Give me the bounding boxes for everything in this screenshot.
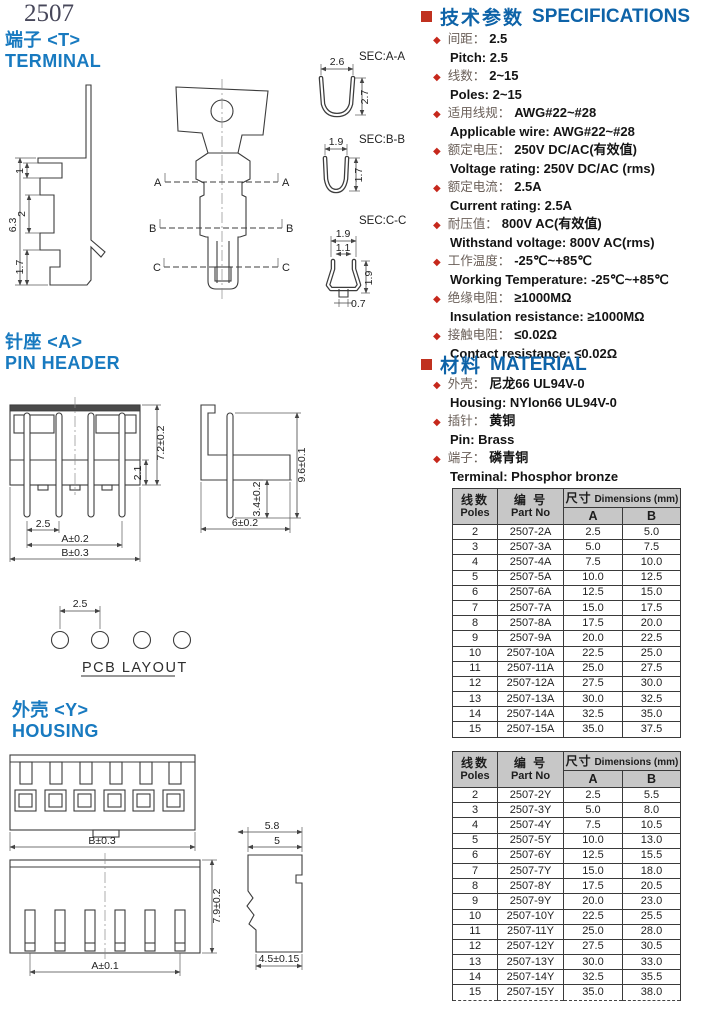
spec-item: ◆适用线规：AWG#22~#28Applicable wire: AWG#22~…	[433, 105, 713, 140]
table-cell: 30.0	[623, 676, 681, 691]
table-cell: 5.0	[623, 525, 681, 540]
spec-label-cn: 端子：	[448, 451, 486, 465]
table-cell: 12	[453, 676, 498, 691]
table-cell: 2507-4Y	[498, 818, 564, 833]
table-cell: 20.5	[623, 879, 681, 894]
pin-header-section-title: 针座 <A> PIN HEADER	[5, 332, 120, 374]
column-header-b: B	[623, 771, 681, 788]
housing-front-view-bottom: A±0.1 7.9±0.2	[10, 853, 223, 976]
table-cell: 13	[453, 692, 498, 707]
table-row: 22507-2Y2.55.5	[453, 788, 681, 803]
dim-label: 6±0.2	[232, 517, 258, 529]
table-cell: 20.0	[564, 631, 623, 646]
spec-line-cn: ◆接触电阻：≤0.02Ω	[433, 327, 713, 346]
spec-line-cn: ◆插针：黄铜	[433, 413, 713, 432]
spec-line-cn: ◆额定电流：2.5A	[433, 179, 713, 198]
table-cell: 10.0	[564, 570, 623, 585]
housing-title-cn: 外壳 <Y>	[12, 700, 99, 721]
spec-line-cn: ◆工作温度：-25℃~+85℃	[433, 253, 713, 272]
table-row: 72507-7A15.017.5	[453, 600, 681, 615]
table-cell: 15.0	[564, 600, 623, 615]
table-row: 142507-14A32.535.0	[453, 707, 681, 722]
section-marker-b: B	[149, 223, 156, 235]
table-cell: 2507-12Y	[498, 939, 564, 954]
table-cell: 5.0	[564, 540, 623, 555]
dim-label: 1.1	[336, 242, 351, 254]
table-cell: 2507-6A	[498, 585, 564, 600]
spec-line-en: Insulation resistance: ≥1000MΩ	[450, 309, 713, 326]
table-row: 122507-12Y27.530.5	[453, 939, 681, 954]
table-cell: 25.0	[564, 661, 623, 676]
table-cell: 9	[453, 894, 498, 909]
table-row: 32507-3A5.07.5	[453, 540, 681, 555]
spec-label-cn: 适用线规：	[448, 106, 511, 120]
spec-value: 2~15	[489, 68, 518, 83]
dim-label: 2.7	[359, 90, 371, 105]
table-cell: 32.5	[623, 692, 681, 707]
table-cell: 25.0	[623, 646, 681, 661]
dim-label: 1	[14, 168, 26, 174]
table-row: 72507-7Y15.018.0	[453, 863, 681, 878]
table-cell: 32.5	[564, 707, 623, 722]
spec-line-en: Working Temperature: -25℃~+85℃	[450, 272, 713, 289]
dim-label: A±0.1	[91, 960, 119, 972]
table-row: 142507-14Y32.535.5	[453, 970, 681, 985]
spec-item: ◆绝缘电阻：≥1000MΩInsulation resistance: ≥100…	[433, 290, 713, 325]
table-cell: 12.5	[623, 570, 681, 585]
table-cell: 2507-9A	[498, 631, 564, 646]
dim-label: 2.6	[330, 56, 345, 68]
spec-item: ◆间距：2.5Pitch: 2.5	[433, 31, 713, 66]
spec-item: ◆外壳：尼龙66 UL94V-0Housing: NYlon66 UL94V-0	[433, 376, 713, 411]
table-cell: 10.5	[623, 818, 681, 833]
spec-line-en: Withstand voltage: 800V AC(rms)	[450, 235, 713, 252]
table-cell: 10.0	[623, 555, 681, 570]
table-row: 152507-15A35.037.5	[453, 722, 681, 737]
dim-label: A±0.2	[61, 533, 89, 545]
table-cell: 7.5	[564, 818, 623, 833]
table-cell: 2507-13Y	[498, 955, 564, 970]
table-cell: 10	[453, 909, 498, 924]
dim-label: 6.3	[7, 218, 19, 233]
spec-label-cn: 插针：	[448, 414, 486, 428]
dim-label: 5	[274, 835, 280, 847]
dim-label: 7.9±0.2	[211, 888, 223, 923]
pcb-layout-label: PCB LAYOUT	[82, 660, 188, 676]
column-header-a: A	[564, 508, 623, 525]
table-cell: 5	[453, 570, 498, 585]
spec-line-cn: ◆间距：2.5	[433, 31, 713, 50]
table-row: 152507-15Y35.038.0	[453, 985, 681, 1000]
spec-value: ≥1000MΩ	[514, 290, 571, 305]
dim-label: 1.9	[329, 136, 344, 148]
diamond-bullet-icon: ◆	[433, 35, 441, 46]
spec-label-cn: 线数：	[448, 69, 486, 83]
table-row: 82507-8Y17.520.5	[453, 879, 681, 894]
table-cell: 3	[453, 803, 498, 818]
diamond-bullet-icon: ◆	[433, 72, 441, 83]
table-cell: 2507-8A	[498, 616, 564, 631]
table-cell: 18.0	[623, 863, 681, 878]
table-cell: 11	[453, 924, 498, 939]
column-header-part-no: 编 号Part No	[498, 489, 564, 525]
table-cell: 11	[453, 661, 498, 676]
dim-label: 7.2±0.2	[155, 425, 167, 460]
red-square-bullet-icon	[421, 359, 432, 370]
spec-item: ◆端子：磷青铜Terminal: Phosphor bronze	[433, 450, 713, 485]
spec-value: 黄铜	[489, 413, 515, 428]
section-aa-label: SEC:A-A	[359, 51, 405, 63]
table-row: 112507-11A25.027.5	[453, 661, 681, 676]
diamond-bullet-icon: ◆	[433, 454, 441, 465]
dim-label: 9.6±0.1	[296, 447, 308, 482]
spec-line-cn: ◆适用线规：AWG#22~#28	[433, 105, 713, 124]
table-cell: 17.5	[623, 600, 681, 615]
spec-line-cn: ◆线数：2~15	[433, 68, 713, 87]
table-cell: 20.0	[564, 894, 623, 909]
spec-value: -25℃~+85℃	[514, 253, 592, 268]
table-cell: 22.5	[564, 909, 623, 924]
table-cell: 15.0	[623, 585, 681, 600]
column-header-b: B	[623, 508, 681, 525]
table-cell: 5.0	[564, 803, 623, 818]
table-cell: 8	[453, 879, 498, 894]
section-marker-c: C	[153, 262, 161, 274]
diamond-bullet-icon: ◆	[433, 257, 441, 268]
specifications-title-cn: 技术参数	[440, 3, 524, 30]
pin-header-side-view: 6±0.2 9.6±0.1 3.4±0.2	[201, 405, 308, 533]
spec-line-cn: ◆额定电压：250V DC/AC(有效值)	[433, 142, 713, 161]
spec-line-en: Pin: Brass	[450, 432, 713, 449]
table-cell: 15	[453, 985, 498, 1000]
spec-value: 2.5	[489, 31, 507, 46]
table-row: 42507-4Y7.510.5	[453, 818, 681, 833]
red-square-bullet-icon	[421, 11, 432, 22]
table-cell: 2507-4A	[498, 555, 564, 570]
spec-item: ◆工作温度：-25℃~+85℃Working Temperature: -25℃…	[433, 253, 713, 288]
table-row: 132507-13A30.032.5	[453, 692, 681, 707]
table-cell: 2507-5Y	[498, 833, 564, 848]
housing-section-title: 外壳 <Y> HOUSING	[12, 700, 99, 742]
dim-label: 0.7	[351, 298, 366, 310]
spec-line-en: Current rating: 2.5A	[450, 198, 713, 215]
spec-label-cn: 工作温度：	[448, 254, 511, 268]
table-cell: 2	[453, 788, 498, 803]
table-cell: 2507-10A	[498, 646, 564, 661]
table-cell: 2507-11A	[498, 661, 564, 676]
material-title-en: MATERIAL	[490, 354, 587, 376]
specifications-title-en: SPECIFICATIONS	[532, 6, 690, 28]
dim-label: 2.5	[73, 598, 88, 610]
diamond-bullet-icon: ◆	[433, 183, 441, 194]
table-cell: 10	[453, 646, 498, 661]
housing-side-view: 5.8 5 4.5±0.15	[238, 820, 302, 970]
housing-drawing: B±0.3 A±0.1 7.9±0.2 5.8 5	[5, 748, 335, 988]
dim-label: 1.7	[14, 260, 26, 275]
table-cell: 35.0	[564, 985, 623, 1000]
table-row: 52507-5A10.012.5	[453, 570, 681, 585]
spec-value: 250V DC/AC(有效值)	[514, 142, 637, 157]
table-row: 102507-10A22.525.0	[453, 646, 681, 661]
table-cell: 13	[453, 955, 498, 970]
table-cell: 38.0	[623, 985, 681, 1000]
material-header: 材料 MATERIAL	[421, 351, 587, 378]
table-row: 112507-11Y25.028.0	[453, 924, 681, 939]
table-cell: 15	[453, 722, 498, 737]
diamond-bullet-icon: ◆	[433, 146, 441, 157]
table-cell: 6	[453, 585, 498, 600]
table-cell: 2507-15Y	[498, 985, 564, 1000]
pcb-layout-view: 2.5 PCB LAYOUT	[52, 598, 191, 676]
spec-item: ◆耐压值：800V AC(有效值)Withstand voltage: 800V…	[433, 216, 713, 251]
table-cell: 10.0	[564, 833, 623, 848]
table-cell: 2507-8Y	[498, 879, 564, 894]
spec-label-cn: 外壳：	[448, 377, 486, 391]
table-row: 22507-2A2.55.0	[453, 525, 681, 540]
table-cell: 27.5	[623, 661, 681, 676]
table-row: 62507-6A12.515.0	[453, 585, 681, 600]
section-cc-label: SEC:C-C	[359, 215, 406, 227]
table-cell: 9	[453, 631, 498, 646]
table-cell: 27.5	[564, 676, 623, 691]
diamond-bullet-icon: ◆	[433, 294, 441, 305]
table-row: 32507-3Y5.08.0	[453, 803, 681, 818]
diamond-bullet-icon: ◆	[433, 380, 441, 391]
specifications-list: ◆间距：2.5Pitch: 2.5◆线数：2~15Poles: 2~15◆适用线…	[433, 31, 713, 364]
spec-value: 2.5A	[514, 179, 541, 194]
table-row: 42507-4A7.510.0	[453, 555, 681, 570]
table-cell: 2507-14Y	[498, 970, 564, 985]
diamond-bullet-icon: ◆	[433, 331, 441, 342]
table-cell: 2507-7Y	[498, 863, 564, 878]
spec-label-cn: 绝缘电阻：	[448, 291, 511, 305]
spec-item: ◆插针：黄铜Pin: Brass	[433, 413, 713, 448]
table-cell: 14	[453, 707, 498, 722]
column-header-poles: 线数Poles	[453, 489, 498, 525]
table-cell: 17.5	[564, 879, 623, 894]
diamond-bullet-icon: ◆	[433, 417, 441, 428]
table-cell: 12	[453, 939, 498, 954]
table-cell: 6	[453, 848, 498, 863]
table-cell: 8	[453, 616, 498, 631]
table-cell: 2507-2A	[498, 525, 564, 540]
section-marker-a: A	[154, 177, 162, 189]
table-cell: 35.5	[623, 970, 681, 985]
column-header-dimensions: 尺寸 Dimensions (mm)	[564, 752, 681, 771]
table-cell: 2507-14A	[498, 707, 564, 722]
dim-label: 1.9	[363, 271, 375, 286]
table-cell: 28.0	[623, 924, 681, 939]
table-cell: 22.5	[623, 631, 681, 646]
table-row: 82507-8A17.520.0	[453, 616, 681, 631]
section-bb-label: SEC:B-B	[359, 134, 405, 146]
pcb-layout-drawing: 2.5 PCB LAYOUT	[40, 593, 270, 688]
table-cell: 2	[453, 525, 498, 540]
table-cell: 17.5	[564, 616, 623, 631]
table-cell: 12.5	[564, 848, 623, 863]
spec-item: ◆额定电压：250V DC/AC(有效值)Voltage rating: 250…	[433, 142, 713, 177]
table-cell: 7	[453, 600, 498, 615]
table-cell: 2507-3Y	[498, 803, 564, 818]
spec-item: ◆额定电流：2.5ACurrent rating: 2.5A	[433, 179, 713, 214]
table-cell: 4	[453, 555, 498, 570]
table-cell: 2507-15A	[498, 722, 564, 737]
table-cell: 2507-12A	[498, 676, 564, 691]
table-row: 52507-5Y10.013.0	[453, 833, 681, 848]
table-cell: 37.5	[623, 722, 681, 737]
table-cell: 30.0	[564, 692, 623, 707]
dim-label: 5.8	[265, 820, 280, 832]
table-cell: 7.5	[564, 555, 623, 570]
datasheet-page: 2507 端子 <T> TERMINAL 6.3 1 2 1.7	[0, 0, 713, 1024]
table-cell: 5.5	[623, 788, 681, 803]
spec-value: ≤0.02Ω	[514, 327, 557, 342]
table-cell: 2507-7A	[498, 600, 564, 615]
doc-number: 2507	[24, 0, 74, 28]
dim-label: 1.9	[336, 228, 351, 240]
spec-line-cn: ◆端子：磷青铜	[433, 450, 713, 469]
dim-label: 2.5	[36, 518, 51, 530]
table-cell: 15.5	[623, 848, 681, 863]
pin-header-title-cn: 针座 <A>	[5, 332, 120, 353]
terminal-front-view: A A B B C C	[149, 79, 293, 299]
table-cell: 5	[453, 833, 498, 848]
table-row: 62507-6Y12.515.5	[453, 848, 681, 863]
terminal-section-cc: SEC:C-C 1.9 1.1 1.9 0.7	[328, 215, 406, 310]
spec-line-en: Pitch: 2.5	[450, 50, 713, 67]
dim-label: 4.5±0.15	[259, 953, 300, 965]
diamond-bullet-icon: ◆	[433, 220, 441, 231]
table-cell: 2507-6Y	[498, 848, 564, 863]
table-cell: 33.0	[623, 955, 681, 970]
table-cell: 14	[453, 970, 498, 985]
table-row: 102507-10Y22.525.5	[453, 909, 681, 924]
spec-value: AWG#22~#28	[514, 105, 596, 120]
spec-label-cn: 接触电阻：	[448, 328, 511, 342]
spec-line-en: Applicable wire: AWG#22~#28	[450, 124, 713, 141]
spec-label-cn: 额定电流：	[448, 180, 511, 194]
table-cell: 27.5	[564, 939, 623, 954]
table-cell: 7.5	[623, 540, 681, 555]
column-header-poles: 线数Poles	[453, 752, 498, 788]
spec-line-cn: ◆绝缘电阻：≥1000MΩ	[433, 290, 713, 309]
spec-label-cn: 额定电压：	[448, 143, 511, 157]
spec-line-cn: ◆外壳：尼龙66 UL94V-0	[433, 376, 713, 395]
material-list: ◆外壳：尼龙66 UL94V-0Housing: NYlon66 UL94V-0…	[433, 376, 713, 487]
spec-label-cn: 耐压值：	[448, 217, 498, 231]
dim-label: 2.1	[132, 466, 144, 481]
spec-line-en: Voltage rating: 250V DC/AC (rms)	[450, 161, 713, 178]
pin-header-title-en: PIN HEADER	[5, 353, 120, 374]
column-header-part-no: 编 号Part No	[498, 752, 564, 788]
terminal-drawing: 6.3 1 2 1.7 A A B B	[10, 45, 430, 325]
column-header-a: A	[564, 771, 623, 788]
table-cell: 25.0	[564, 924, 623, 939]
spec-line-en: Poles: 2~15	[450, 87, 713, 104]
table-cell: 30.5	[623, 939, 681, 954]
terminal-section-bb: SEC:B-B 1.9 1.7	[325, 134, 405, 191]
table-cell: 2507-9Y	[498, 894, 564, 909]
spec-value: 尼龙66 UL94V-0	[489, 376, 584, 391]
table-cell: 32.5	[564, 970, 623, 985]
table-cell: 2507-2Y	[498, 788, 564, 803]
spec-value: 磷青铜	[489, 450, 528, 465]
spec-value: 800V AC(有效值)	[502, 216, 602, 231]
terminal-section-aa: SEC:A-A 2.6 2.7	[321, 51, 405, 115]
housing-title-en: HOUSING	[12, 721, 99, 742]
part-table-b: 线数Poles编 号Part No尺寸 Dimensions (mm)AB225…	[452, 751, 681, 1001]
pin-header-front-view: 2.5 A±0.2 B±0.3 7.2±0.2 2.1	[10, 397, 167, 562]
table-cell: 25.5	[623, 909, 681, 924]
table-cell: 3	[453, 540, 498, 555]
spec-label-cn: 间距：	[448, 32, 486, 46]
table-row: 132507-13Y30.033.0	[453, 955, 681, 970]
table-cell: 4	[453, 818, 498, 833]
table-cell: 2507-5A	[498, 570, 564, 585]
table-cell: 12.5	[564, 585, 623, 600]
section-marker-a: A	[282, 177, 290, 189]
part-table-a: 线数Poles编 号Part No尺寸 Dimensions (mm)AB225…	[452, 488, 681, 738]
dim-label: 2	[16, 211, 28, 217]
spec-line-cn: ◆耐压值：800V AC(有效值)	[433, 216, 713, 235]
table-cell: 2507-10Y	[498, 909, 564, 924]
diamond-bullet-icon: ◆	[433, 109, 441, 120]
table-cell: 20.0	[623, 616, 681, 631]
table-cell: 15.0	[564, 863, 623, 878]
table-row: 92507-9A20.022.5	[453, 631, 681, 646]
dim-label: 3.4±0.2	[251, 481, 263, 516]
table-cell: 23.0	[623, 894, 681, 909]
section-marker-c: C	[282, 262, 290, 274]
spec-item: ◆线数：2~15Poles: 2~15	[433, 68, 713, 103]
table-cell: 2.5	[564, 525, 623, 540]
dim-label: B±0.3	[61, 547, 89, 559]
material-title-cn: 材料	[440, 351, 482, 378]
table-cell: 30.0	[564, 955, 623, 970]
table-cell: 2507-3A	[498, 540, 564, 555]
table-cell: 13.0	[623, 833, 681, 848]
table-cell: 2507-13A	[498, 692, 564, 707]
terminal-side-view: 6.3 1 2 1.7	[7, 85, 105, 285]
table-cell: 35.0	[564, 722, 623, 737]
spec-line-en: Terminal: Phosphor bronze	[450, 469, 713, 486]
table-row: 92507-9Y20.023.0	[453, 894, 681, 909]
table-cell: 7	[453, 863, 498, 878]
table-cell: 2507-11Y	[498, 924, 564, 939]
specifications-header: 技术参数 SPECIFICATIONS	[421, 3, 690, 30]
table-cell: 2.5	[564, 788, 623, 803]
column-header-dimensions: 尺寸 Dimensions (mm)	[564, 489, 681, 508]
spec-line-en: Housing: NYlon66 UL94V-0	[450, 395, 713, 412]
table-cell: 35.0	[623, 707, 681, 722]
dim-label: 1.7	[353, 168, 365, 183]
dim-label: B±0.3	[88, 835, 116, 847]
housing-front-view-top: B±0.3	[10, 755, 195, 851]
table-cell: 22.5	[564, 646, 623, 661]
table-cell: 8.0	[623, 803, 681, 818]
table-row: 122507-12A27.530.0	[453, 676, 681, 691]
pin-header-drawing: 2.5 A±0.2 B±0.3 7.2±0.2 2.1 6±0.2 9.6±0.…	[5, 383, 335, 573]
section-marker-b: B	[286, 223, 293, 235]
